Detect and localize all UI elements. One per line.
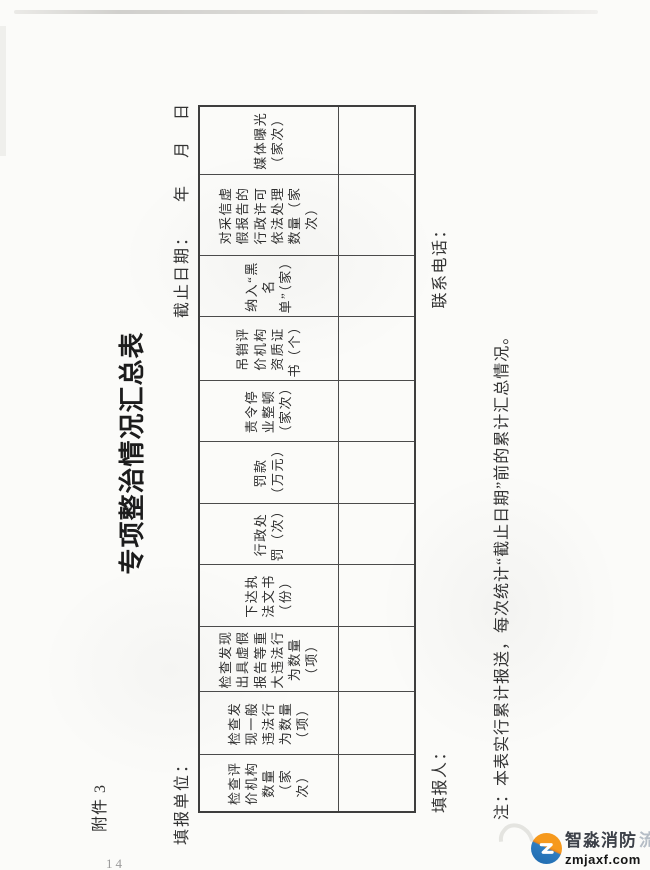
meta-row: 填报单位： 截止日期： 年 月 日: [168, 102, 192, 845]
phone-label: 联系电话：: [426, 221, 450, 309]
data-cell: [338, 106, 415, 175]
brand-domain: zmjaxf.com: [565, 852, 650, 867]
deadline-group: 截止日期： 年 月 日: [168, 102, 192, 318]
column-header: 对采信虚假报告的行政许可依法处理数量（家次）: [199, 175, 338, 256]
day-label: 日: [168, 102, 192, 120]
data-cell: [338, 504, 415, 565]
data-cell: [338, 565, 415, 627]
header-row: 检查评价机构数量（家次） 检查发现一般违法行为数量（项） 检查发现出具虚假报告等…: [199, 106, 338, 812]
data-cell: [338, 175, 415, 256]
data-cell: [338, 256, 415, 317]
column-header: 下达执法文书（份）: [199, 565, 338, 627]
summary-table: 检查评价机构数量（家次） 检查发现一般违法行为数量（项） 检查发现出具虚假报告等…: [198, 105, 416, 813]
data-cell: [338, 381, 415, 442]
deadline-label: 截止日期：: [168, 228, 192, 318]
data-cell: [338, 755, 415, 812]
column-header: 检查发现一般违法行为数量（项）: [199, 692, 338, 755]
column-header: 吊销评价机构资质证书（个）: [199, 317, 338, 381]
filler-label: 填报人：: [426, 743, 450, 813]
column-header: 罚款（万元）: [199, 442, 338, 504]
data-cell: [338, 627, 415, 692]
watermark-text: 智淼消防流 zmjaxf.com: [565, 826, 650, 867]
brand-main: 智淼消防: [565, 831, 637, 850]
column-header: 媒体曝光（家次）: [199, 106, 338, 175]
data-row: [338, 106, 415, 812]
page-number: 14: [106, 856, 125, 870]
column-header: 责令停业整顿（家次）: [199, 381, 338, 442]
rotated-document: 附件 3 专项整治情况汇总表 填报单位： 截止日期： 年 月 日 检查评价机构数…: [0, 0, 650, 870]
brand-suffix: 流: [639, 831, 650, 850]
data-cell: [338, 442, 415, 504]
scanned-page: 附件 3 专项整治情况汇总表 填报单位： 截止日期： 年 月 日 检查评价机构数…: [0, 0, 650, 870]
note-text: 注：本表实行累计报送，每次统计“截止日期”前的累计汇总情况。: [488, 260, 512, 820]
fill-unit-label: 填报单位：: [168, 755, 192, 845]
column-header: 纳入“黑名单”（家）: [199, 256, 338, 317]
page-title: 专项整治情况汇总表: [112, 18, 149, 870]
month-label: 月: [168, 140, 192, 158]
year-label: 年: [168, 184, 192, 202]
z-swoosh-icon: [531, 833, 562, 864]
column-header: 行政处罚（次）: [199, 504, 338, 565]
footer-row: 填报人： 联系电话：: [426, 221, 450, 813]
data-cell: [338, 692, 415, 755]
data-cell: [338, 317, 415, 381]
column-header: 检查评价机构数量（家次）: [199, 755, 338, 812]
site-watermark: 智淼消防流 zmjaxf.com: [498, 820, 650, 870]
column-header: 检查发现出具虚假报告等重大违法行为数量（项）: [199, 627, 338, 692]
brand-name: 智淼消防流: [565, 826, 650, 851]
attachment-label: 附件 3: [86, 784, 110, 832]
